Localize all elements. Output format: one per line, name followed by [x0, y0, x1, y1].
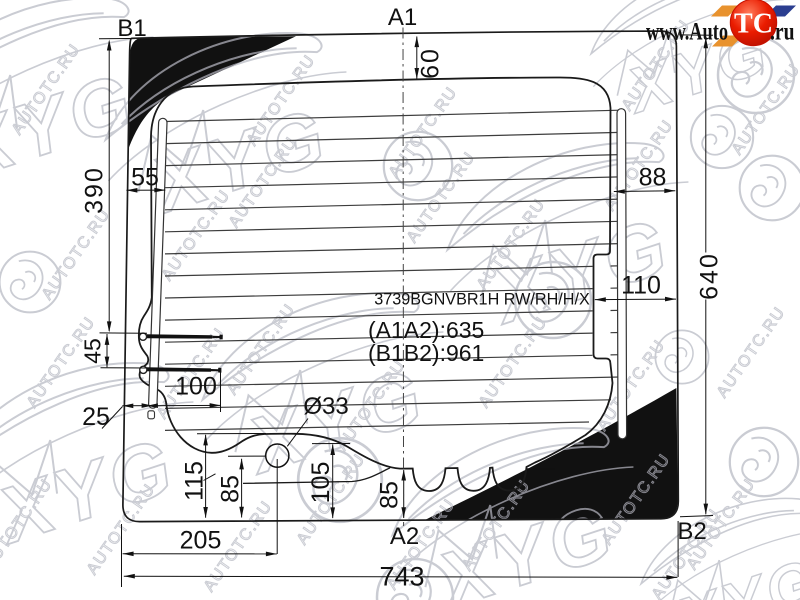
svg-text:110: 110	[621, 272, 661, 300]
svg-text:B1: B1	[117, 15, 146, 42]
svg-text:640: 640	[696, 252, 724, 300]
svg-text:88: 88	[639, 164, 667, 192]
svg-text:743: 743	[379, 562, 424, 592]
svg-text:205: 205	[180, 527, 222, 555]
svg-text:45: 45	[80, 338, 106, 364]
svg-text:115: 115	[181, 461, 209, 501]
svg-text:3739BGNVBR1H RW/RH/H/X: 3739BGNVBR1H RW/RH/H/X	[374, 291, 590, 309]
svg-text:(B1B2):961: (B1B2):961	[368, 340, 484, 366]
svg-text:55: 55	[131, 164, 159, 192]
svg-text:85: 85	[217, 475, 245, 503]
svg-text:100: 100	[175, 373, 217, 401]
svg-text:A2: A2	[390, 523, 419, 550]
svg-text:60: 60	[417, 47, 445, 79]
svg-text:B2: B2	[677, 518, 706, 545]
svg-text:85: 85	[376, 481, 404, 509]
svg-text:Ø33: Ø33	[303, 393, 348, 420]
svg-text:TC: TC	[734, 9, 773, 40]
svg-text:.ru: .ru	[770, 19, 795, 46]
svg-text:A1: A1	[388, 4, 417, 31]
svg-text:www.Auto: www.Auto	[646, 19, 728, 46]
svg-text:25: 25	[82, 403, 110, 431]
svg-text:105: 105	[307, 462, 335, 504]
svg-text:390: 390	[81, 166, 109, 214]
